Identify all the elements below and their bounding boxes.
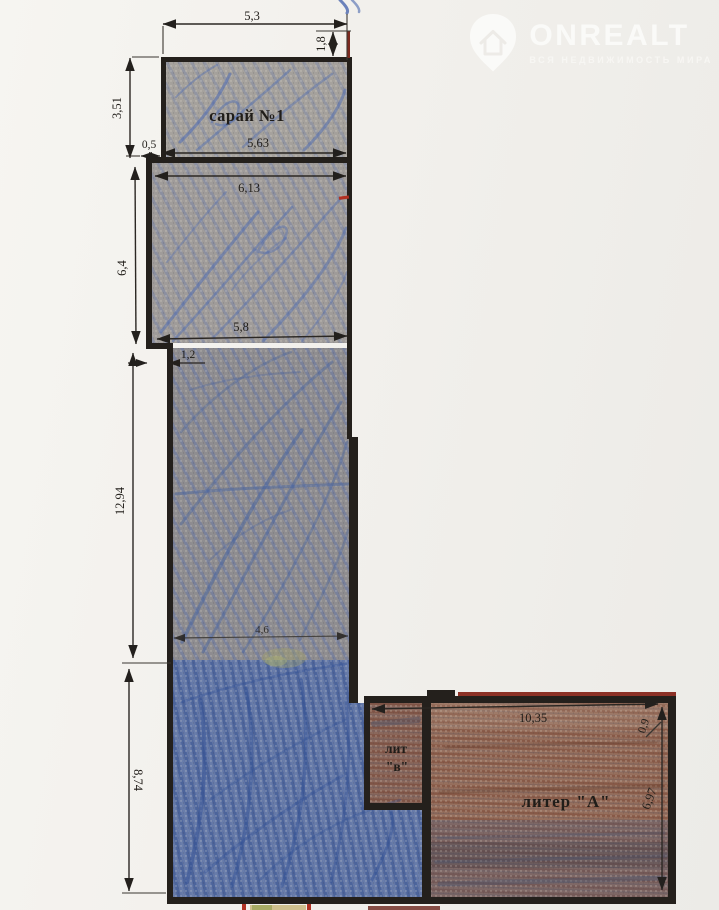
dim-section4-width: 4,6 xyxy=(255,624,269,636)
blue-pen-edge-mark xyxy=(340,0,359,13)
dim-liter-a-width: 10,35 xyxy=(519,711,547,725)
dim-section2-height: 6,4 xyxy=(115,259,129,275)
dim-top-width: 5,3 xyxy=(244,9,260,23)
shed-label: сарай №1 xyxy=(209,106,285,125)
dim-shed-height: 3,51 xyxy=(110,97,124,119)
lit-v-label-line1: лит xyxy=(385,741,407,756)
lit-v-label-line2: "в" xyxy=(386,759,408,774)
dim-step: 1,2 xyxy=(181,349,196,361)
dim-section2-width: 6,13 xyxy=(238,181,260,195)
dim-section4-height: 8,74 xyxy=(131,769,145,792)
dim-section3-width: 5,8 xyxy=(233,320,249,334)
dim-section3-height: 12,94 xyxy=(113,486,127,515)
floor-plan-drawing: 5,3 1,8 3,51 0,5 5,63 6,13 6,4 5,8 1,2 1… xyxy=(0,0,719,910)
dim-shed-side: 1,8 xyxy=(314,36,328,52)
liter-a-label: литер "А" xyxy=(521,792,610,811)
olive-smudge xyxy=(262,648,306,668)
scanned-floor-plan-page: 5,3 1,8 3,51 0,5 5,63 6,13 6,4 5,8 1,2 1… xyxy=(0,0,719,910)
dim-shed-width: 5,63 xyxy=(247,136,269,150)
dim-left-offset: 0,5 xyxy=(142,139,157,151)
